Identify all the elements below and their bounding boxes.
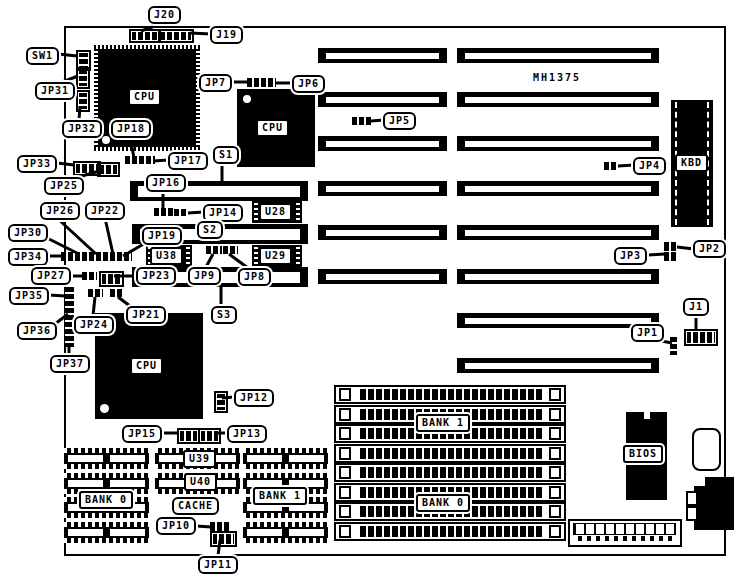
isa-slot-long-7: [457, 313, 659, 328]
bottom-header-pins-row2: [573, 536, 674, 541]
isa-slot-short-2: [318, 92, 447, 107]
isa-slot-short-5: [318, 225, 447, 240]
isa-slot-short-3: [318, 136, 447, 151]
callout-jp26: JP26: [40, 202, 80, 220]
header-j1: [684, 329, 718, 346]
cache-row: [243, 522, 328, 543]
isa-slot-long-1: [457, 48, 659, 63]
callout-bank0-simm: BANK 0: [416, 494, 470, 512]
isa-slot-long-3: [457, 136, 659, 151]
callout-jp12: JP12: [234, 389, 274, 407]
callout-jp5: JP5: [383, 112, 416, 130]
callout-jp27: JP27: [31, 267, 71, 285]
bottom-header-pins-row1: [573, 523, 676, 535]
callout-u39: U39: [183, 450, 216, 468]
cpu2-label: CPU: [257, 120, 288, 136]
jumper-jp24: [88, 289, 103, 297]
callout-jp21: JP21: [126, 306, 166, 324]
callout-u29: U29: [259, 247, 292, 265]
cpu2-pin1-dot: [243, 95, 251, 103]
cpu1-pins-bottom: [94, 147, 200, 151]
jumper-jp1: [670, 337, 677, 355]
callout-jp3: JP3: [614, 247, 647, 265]
callout-jp34: JP34: [8, 248, 48, 266]
simm-contacts: [358, 448, 542, 459]
callout-jp23: JP23: [136, 267, 176, 285]
callout-jp24: JP24: [74, 316, 114, 334]
power-connector-tab: [686, 491, 698, 506]
jumper-j20: [129, 29, 161, 43]
callout-bank1-simm: BANK 1: [416, 414, 470, 432]
cache-row: [243, 448, 328, 469]
isa-slot-long-8: [457, 358, 659, 373]
callout-cache: CACHE: [172, 497, 219, 515]
callout-u28: U28: [259, 203, 292, 221]
motherboard-diagram: MH1375: [0, 0, 736, 582]
isa-slot-short-4: [318, 181, 447, 196]
jumper-jp5: [352, 117, 371, 125]
callout-jp32: JP32: [62, 120, 102, 138]
cpu1-label: CPU: [129, 89, 160, 105]
jumper-jp9: [206, 246, 222, 254]
callout-jp9: JP9: [188, 267, 221, 285]
callout-bios: BIOS: [623, 445, 663, 463]
jumper-jp18-jp17: [125, 156, 155, 164]
callout-jp17: JP17: [168, 152, 208, 170]
callout-jp25: JP25: [44, 177, 84, 195]
jumper-jp3: [664, 252, 678, 261]
cache-row: [64, 448, 149, 469]
simm-socket-4: [334, 444, 566, 463]
callout-jp31: JP31: [35, 82, 75, 100]
callout-jp1: JP1: [631, 324, 664, 342]
jumper-jp13: [198, 428, 221, 444]
simm-socket-8: [334, 522, 566, 541]
callout-jp37: JP37: [50, 355, 90, 373]
jumper-jp16: [154, 208, 173, 216]
jumper-jp12: [214, 391, 228, 413]
jumper-jp25: [97, 162, 120, 177]
jumper-jp7-jp6: [247, 78, 276, 87]
jumper-jp23: [99, 271, 124, 287]
callout-u38: U38: [150, 247, 183, 265]
callout-jp33: JP33: [17, 155, 57, 173]
isa-slot-short-6: [318, 269, 447, 284]
callout-jp19: JP19: [142, 227, 182, 245]
callout-jp6: JP6: [292, 75, 325, 93]
cache-row: [64, 522, 149, 543]
callout-bank0-cache: BANK 0: [79, 491, 133, 509]
jumper-jp10: [210, 522, 231, 531]
callout-j19: J19: [210, 26, 243, 44]
jumper-jp8: [223, 246, 238, 254]
jumper-jp31: [76, 67, 90, 89]
isa-slot-long-5: [457, 225, 659, 240]
callout-jp13: JP13: [227, 425, 267, 443]
power-connector-body: [694, 486, 734, 530]
callout-jp30: JP30: [8, 224, 48, 242]
jumper-jp14: [174, 209, 188, 216]
jumper-jp27: [82, 272, 97, 280]
callout-s3: S3: [211, 306, 237, 324]
isa-slot-long-6: [457, 269, 659, 284]
callout-jp7: JP7: [199, 74, 232, 92]
callout-bank1-cache: BANK 1: [253, 487, 307, 505]
callout-jp10: JP10: [156, 517, 196, 535]
callout-u40: U40: [184, 473, 217, 491]
cpu1-pins-right: [196, 49, 200, 147]
board-model-text: MH1375: [533, 72, 581, 83]
simm-socket-1: [334, 385, 566, 404]
jumper-jp15: [177, 428, 200, 444]
jumper-jp11: [210, 531, 237, 547]
isa-slot-long-4: [457, 181, 659, 196]
callout-jp36: JP36: [17, 322, 57, 340]
isa-slot-short-1: [318, 48, 447, 63]
jumper-block-jp22-jp26-jp30-jp34-jp19: [61, 252, 132, 261]
jumper-j19: [158, 29, 194, 43]
cpu3-label: CPU: [131, 358, 162, 374]
jumper-jp4: [604, 162, 618, 170]
callout-jp8: JP8: [238, 268, 271, 286]
callout-s2: S2: [197, 221, 223, 239]
callout-kbd: KBD: [675, 154, 708, 172]
callout-jp14: JP14: [203, 204, 243, 222]
callout-jp16: JP16: [146, 174, 186, 192]
callout-jp2: JP2: [693, 240, 726, 258]
jumper-jp32: [76, 90, 90, 112]
simm-contacts: [358, 526, 542, 537]
callout-j1: J1: [683, 298, 709, 316]
power-connector-tab: [686, 506, 698, 521]
jumper-strip-jp35-jp36-jp37: [65, 287, 74, 347]
callout-sw1: SW1: [26, 47, 59, 65]
simm-contacts: [358, 467, 542, 478]
jumper-jp2: [664, 242, 678, 251]
callout-j20: J20: [148, 6, 181, 24]
callout-jp4: JP4: [633, 157, 666, 175]
isa-slot-long-2: [457, 92, 659, 107]
callout-jp35: JP35: [9, 287, 49, 305]
callout-jp18: JP18: [111, 120, 151, 138]
callout-jp22: JP22: [85, 202, 125, 220]
simm-socket-5: [334, 463, 566, 482]
simm-contacts: [358, 389, 542, 400]
cpu3-pin1-dot: [100, 404, 109, 413]
callout-s1: S1: [213, 146, 239, 164]
battery-outline: [692, 428, 721, 471]
cpu1-pin1-dot: [102, 136, 110, 144]
jumper-jp21: [110, 289, 124, 297]
callout-jp15: JP15: [122, 425, 162, 443]
callout-jp11: JP11: [198, 556, 238, 574]
